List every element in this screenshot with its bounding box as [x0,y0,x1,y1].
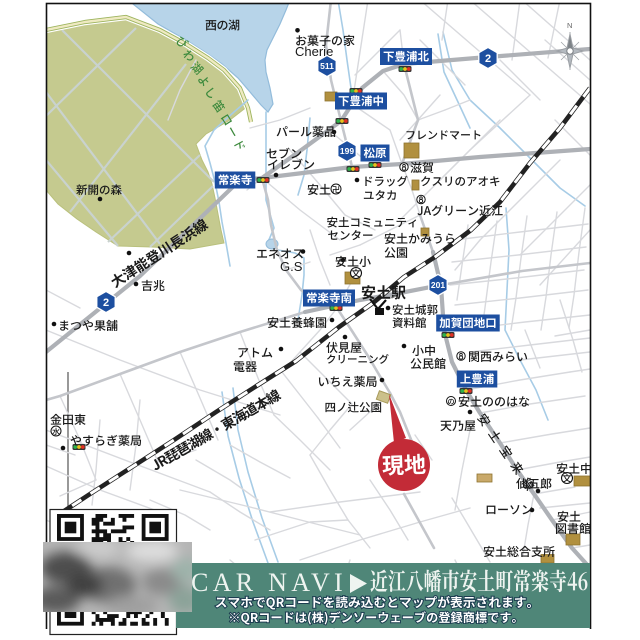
svg-text:511: 511 [320,61,334,71]
svg-text:G.S: G.S [280,259,303,274]
svg-text:CAR NAVI: CAR NAVI [191,568,347,597]
svg-text:N: N [567,21,572,30]
svg-text:2: 2 [103,297,109,309]
svg-text:199: 199 [340,146,354,156]
svg-text:201: 201 [431,280,445,290]
svg-text:2: 2 [485,53,491,65]
